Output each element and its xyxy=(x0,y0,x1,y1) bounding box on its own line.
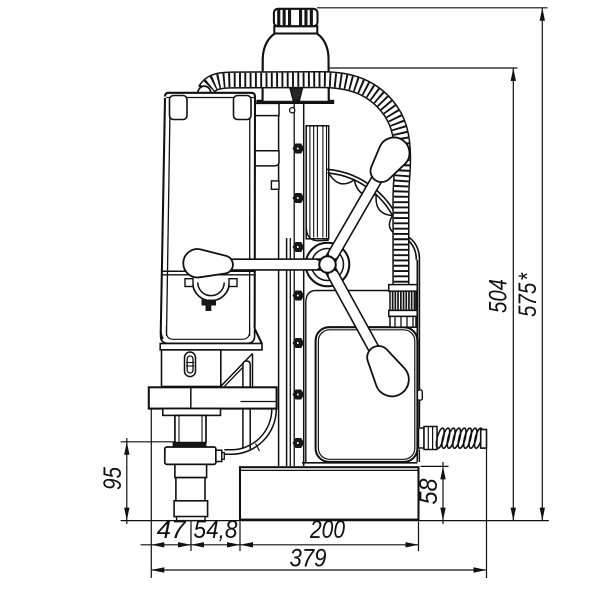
svg-text:504: 504 xyxy=(485,279,513,313)
svg-text:54,8: 54,8 xyxy=(194,516,238,544)
svg-text:47: 47 xyxy=(157,516,187,544)
svg-text:379: 379 xyxy=(290,545,327,573)
svg-text:58: 58 xyxy=(415,478,443,504)
svg-text:95: 95 xyxy=(99,467,127,490)
svg-text:200: 200 xyxy=(309,516,345,544)
svg-text:575 *: 575 * xyxy=(514,272,542,317)
